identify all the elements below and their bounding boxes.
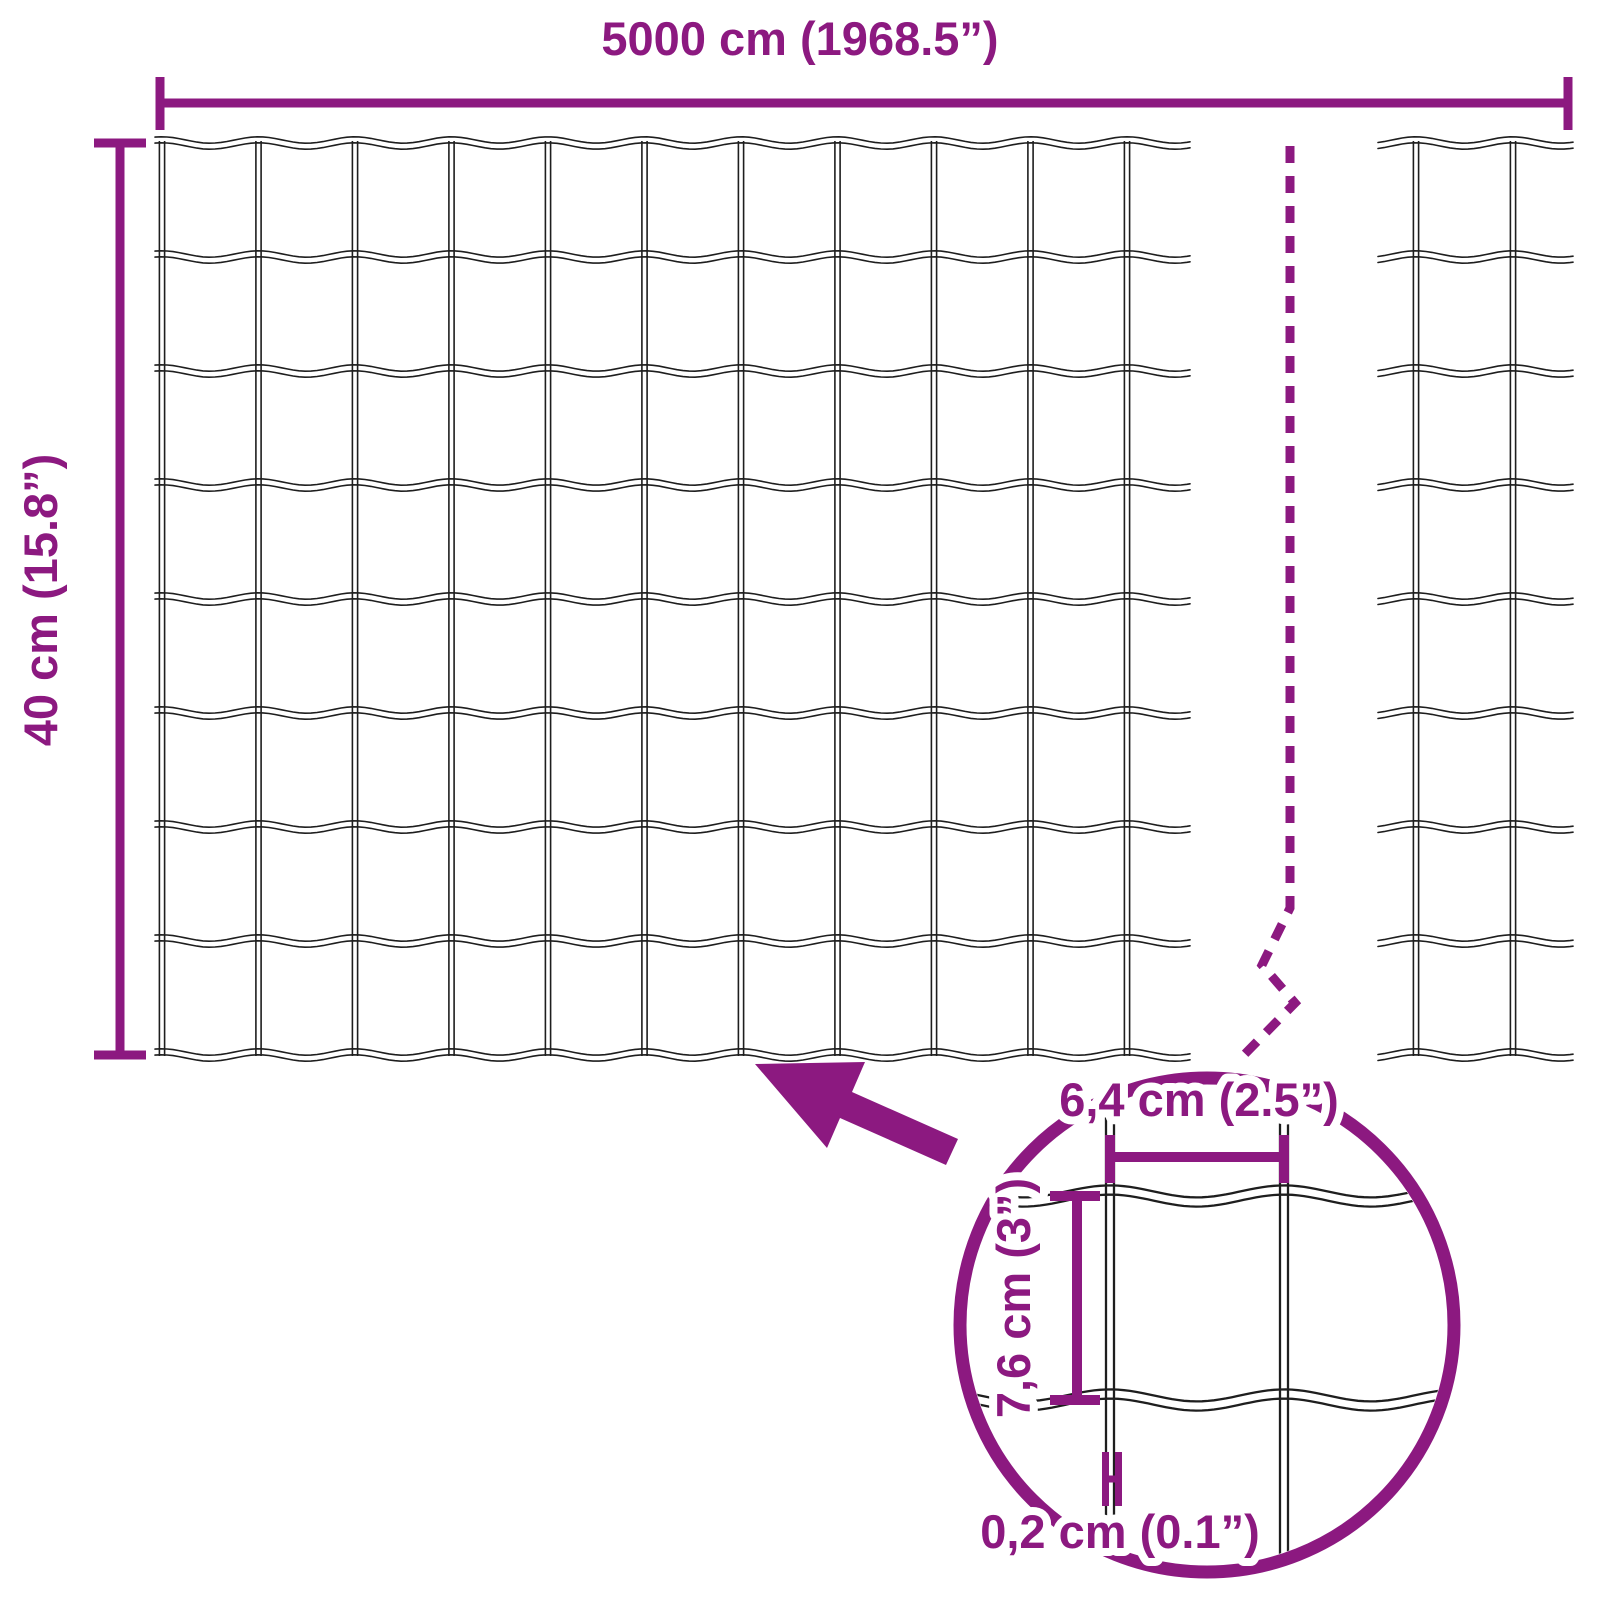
mesh-main-section [155,137,1190,1061]
height-dimension-label: 40 cm (15.8”) [14,454,67,747]
magnifier-arrow [755,1062,958,1165]
diagram-canvas: 5000 cm (1968.5”) 40 cm (15.8”) [0,0,1600,1600]
width-dimension-label: 5000 cm (1968.5”) [601,12,998,65]
lens-mesh-width-label: 6,4 cm (2.5”) [1059,1073,1339,1126]
width-dimension: 5000 cm (1968.5”) [160,12,1568,130]
fence-dimension-diagram: 5000 cm (1968.5”) 40 cm (15.8”) [0,0,1600,1600]
break-continuation-line [1237,146,1295,1062]
detail-lens: 6,4 cm (2.5”) 7,6 cm (3”) 0,2 cm (0.1”) [950,1072,1460,1576]
height-dimension: 40 cm (15.8”) [14,143,146,1055]
lens-wire-thickness-label: 0,2 cm (0.1”) [980,1505,1260,1558]
mesh-right-section [1378,137,1573,1061]
lens-mesh-height-label: 7,6 cm (3”) [987,1178,1040,1418]
